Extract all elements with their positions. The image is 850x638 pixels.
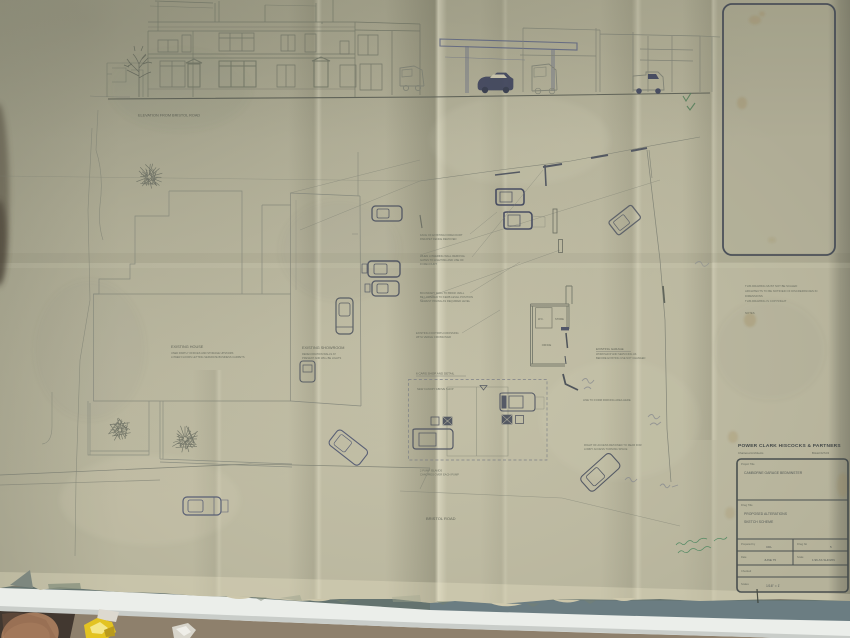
svg-text:Bristol 0272/4: Bristol 0272/4 (812, 451, 830, 455)
svg-text:STORE: STORE (555, 317, 564, 321)
svg-text:LORRY ACCESS TURNING SPACE: LORRY ACCESS TURNING SPACE (584, 447, 628, 451)
svg-text:LINE TO FORM PARKING AREA HERE: LINE TO FORM PARKING AREA HERE (583, 398, 631, 402)
svg-text:REDECORATION WALLS AT: REDECORATION WALLS AT (302, 352, 336, 356)
svg-text:WHEN LOWERING WALL REMOVAL: WHEN LOWERING WALL REMOVAL (420, 254, 466, 258)
svg-text:THIS DRAWING MUST NOT BE SCALE: THIS DRAWING MUST NOT BE SCALED (745, 284, 797, 288)
svg-text:RIGHT OF ACCESS RETAINED TO RE: RIGHT OF ACCESS RETAINED TO REAR FOR (584, 443, 642, 447)
svg-text:BRISTOL ROAD: BRISTOL ROAD (426, 516, 456, 521)
svg-text:OFFICE: OFFICE (542, 343, 552, 347)
svg-text:Drwg Title: Drwg Title (741, 503, 753, 507)
svg-text:Prepared by: Prepared by (741, 542, 756, 546)
svg-text:EXISTING GARAGE: EXISTING GARAGE (596, 347, 624, 351)
svg-text:BE LOWERED TO KERB LEVEL POSIT: BE LOWERED TO KERB LEVEL POSITION (420, 295, 473, 299)
svg-text:FORECOURT: FORECOURT (420, 262, 437, 266)
svg-text:Scales: Scales (741, 582, 749, 586)
svg-text:2 PUMP ISLANDS: 2 PUMP ISLANDS (420, 469, 442, 473)
svg-text:Chartered Architects: Chartered Architects (738, 451, 764, 455)
svg-text:EXISTING SHOWROOM: EXISTING SHOWROOM (302, 346, 344, 350)
svg-text:FACE OF EXISTING FORECOURT: FACE OF EXISTING FORECOURT (420, 233, 463, 237)
svg-text:POWER CLARK HISCOCKS & PARTNER: POWER CLARK HISCOCKS & PARTNERS (738, 443, 841, 449)
svg-text:CDL: CDL (766, 545, 772, 549)
svg-text:1/16" = 1': 1/16" = 1' (766, 584, 781, 588)
svg-text:SKETCH SCHEME: SKETCH SCHEME (744, 520, 774, 524)
svg-text:GATES TO LIGHTING AND USE OF: GATES TO LIGHTING AND USE OF (420, 258, 464, 262)
svg-text:WITH VERGE CROSSOVER: WITH VERGE CROSSOVER (416, 335, 451, 339)
svg-text:DIMENSIONS: DIMENSIONS (745, 294, 763, 298)
svg-text:PRESENT AND WILL BE LIGHTS: PRESENT AND WILL BE LIGHTS (302, 356, 341, 360)
svg-text:CANOPIES OVER EACH PUMP: CANOPIES OVER EACH PUMP (420, 473, 459, 477)
svg-text:BEFORE EXISTING USE NOT CHANGE: BEFORE EXISTING USE NOT CHANGED (596, 356, 646, 360)
svg-text:NEWEST PAVING AS REQUIRED LEVE: NEWEST PAVING AS REQUIRED LEVEL (420, 299, 471, 303)
svg-text:Date: Date (741, 555, 747, 559)
svg-text:Drwg No: Drwg No (797, 542, 808, 546)
svg-text:6 CARS SHOP AND DETAIL: 6 CARS SHOP AND DETAIL (416, 372, 455, 376)
svg-text:WORKSHOP AND SERVICING AS: WORKSHOP AND SERVICING AS (596, 352, 637, 356)
svg-text:ARCHITECTS TO BE NOTIFIED OF D: ARCHITECTS TO BE NOTIFIED OF DISCREPANCI… (745, 289, 817, 293)
svg-text:EXISTING HOUSE: EXISTING HOUSE (171, 345, 204, 349)
svg-text:EXISTING FOOTPATH CROSSING: EXISTING FOOTPATH CROSSING (416, 331, 459, 335)
svg-text:PROPOSED ALTERATIONS: PROPOSED ALTERATIONS (744, 512, 788, 516)
svg-text:USED PARTLY OFFICES AND STORAG: USED PARTLY OFFICES AND STORAGE UPSTAIRS (171, 351, 234, 355)
svg-text:1:96 AS SHOWN: 1:96 AS SHOWN (812, 558, 835, 562)
svg-text:CAMBORNE GARAGE BEDMINSTER: CAMBORNE GARAGE BEDMINSTER (744, 471, 803, 475)
svg-text:PARAPET FENCE REMOVED: PARAPET FENCE REMOVED (420, 237, 457, 241)
svg-text:Checked: Checked (741, 569, 752, 573)
svg-text:LOWER FLOORS LETTING SEPARATE: LOWER FLOORS LETTING SEPARATE BUSINESS C… (171, 355, 245, 359)
svg-text:Project Title: Project Title (741, 462, 755, 466)
svg-text:ELEVATION FROM BRISTOL ROAD: ELEVATION FROM BRISTOL ROAD (138, 114, 200, 118)
svg-text:JUNE 75: JUNE 75 (764, 558, 776, 562)
svg-text:NEW CANOPY ABOVE SHOP: NEW CANOPY ABOVE SHOP (417, 387, 454, 391)
svg-text:W.C.: W.C. (538, 317, 544, 321)
svg-text:BOUNDARY WALL TO BRICK WALL: BOUNDARY WALL TO BRICK WALL (420, 291, 465, 295)
svg-text:THIS DRAWING IS COPYRIGHT: THIS DRAWING IS COPYRIGHT (745, 299, 787, 303)
svg-text:Scale: Scale (797, 555, 804, 559)
